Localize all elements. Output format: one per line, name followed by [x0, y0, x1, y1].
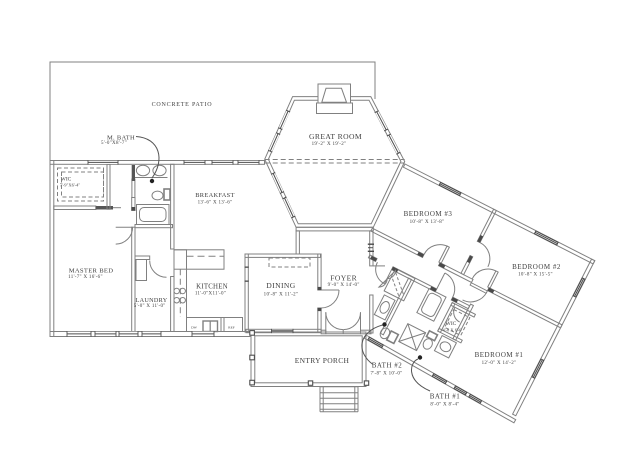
svg-text:11'-7" X 16'-6": 11'-7" X 16'-6"	[68, 275, 103, 280]
svg-text:WIC: WIC	[446, 321, 457, 327]
svg-text:4'-0 X 6'-0: 4'-0 X 6'-0	[442, 328, 462, 333]
svg-text:ENTRY PORCH: ENTRY PORCH	[295, 356, 350, 365]
svg-text:13'-6" X 13'-6": 13'-6" X 13'-6"	[198, 201, 233, 206]
svg-text:12'-0" X 14'-2": 12'-0" X 14'-2"	[482, 361, 517, 366]
svg-text:7'-9"X6'-4": 7'-9"X6'-4"	[60, 183, 81, 188]
svg-text:10'-8" X 13'-8": 10'-8" X 13'-8"	[410, 220, 445, 225]
svg-text:5'-0"X8'-7": 5'-0"X8'-7"	[101, 141, 127, 146]
svg-text:GREAT ROOM: GREAT ROOM	[309, 132, 362, 141]
svg-text:LAUNDRY: LAUNDRY	[135, 297, 167, 304]
svg-text:BEDROOM #3: BEDROOM #3	[404, 210, 453, 218]
svg-text:BEDROOM #1: BEDROOM #1	[475, 351, 524, 359]
svg-text:DW: DW	[191, 326, 198, 330]
svg-text:BATH #1: BATH #1	[430, 393, 461, 401]
svg-text:7'-8" X 10'-0": 7'-8" X 10'-0"	[370, 372, 402, 377]
svg-text:BEDROOM #2: BEDROOM #2	[512, 263, 561, 271]
svg-text:KITCHEN: KITCHEN	[196, 284, 228, 291]
svg-text:19'-2" X 19'-2": 19'-2" X 19'-2"	[312, 142, 347, 147]
svg-text:10'-8" X 11'-2": 10'-8" X 11'-2"	[264, 292, 299, 297]
svg-text:CONCRETE PATIO: CONCRETE PATIO	[152, 102, 213, 108]
svg-text:FOYER: FOYER	[330, 274, 357, 283]
svg-text:DINING: DINING	[266, 281, 296, 290]
svg-text:REF: REF	[228, 326, 234, 330]
svg-text:5'-0" X 11'-0": 5'-0" X 11'-0"	[134, 304, 166, 309]
svg-text:BATH #2: BATH #2	[372, 362, 403, 370]
svg-text:BREAKFAST: BREAKFAST	[195, 192, 235, 199]
svg-text:11'-0"X11'-0": 11'-0"X11'-0"	[195, 291, 226, 296]
svg-text:10'-8" X 15'-5": 10'-8" X 15'-5"	[518, 273, 553, 278]
svg-text:9'-0" X 14'-0": 9'-0" X 14'-0"	[328, 283, 360, 288]
svg-text:8'-0" X 8'-4": 8'-0" X 8'-4"	[430, 403, 459, 408]
svg-text:MASTER BED: MASTER BED	[69, 268, 114, 275]
